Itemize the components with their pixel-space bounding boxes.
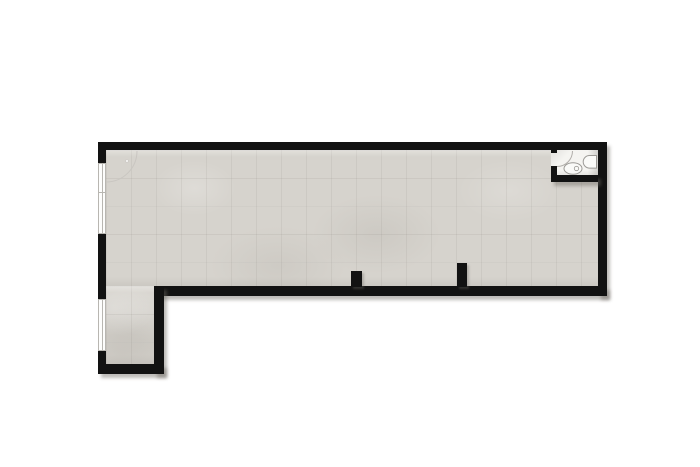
- toilet-icon: [564, 163, 582, 175]
- entry-door-swing-hinge-dot: [126, 160, 129, 163]
- fixtures-overlay: [0, 0, 700, 467]
- sink-icon: [583, 156, 596, 169]
- entry-door-swing: [106, 151, 137, 182]
- floor-plan: [0, 0, 700, 467]
